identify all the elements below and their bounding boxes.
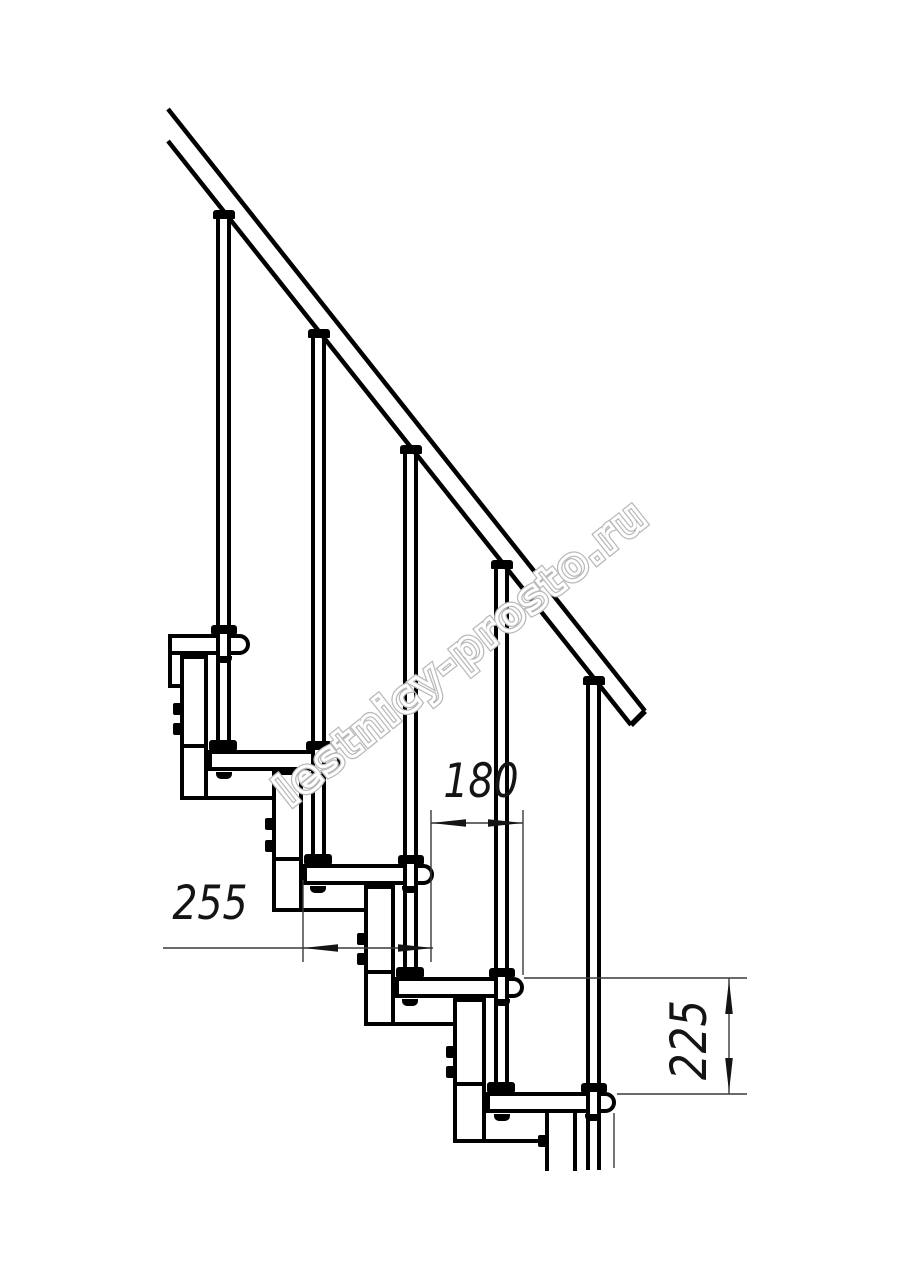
watermark: lestnicy-prosto.ru lestnicy-prosto.ru — [0, 0, 914, 1280]
staircase-side-elevation: 180 255 225 lestnicy-prosto.ru lestnicy-… — [0, 0, 914, 1280]
watermark-text: lestnicy-prosto.ru — [265, 490, 657, 816]
